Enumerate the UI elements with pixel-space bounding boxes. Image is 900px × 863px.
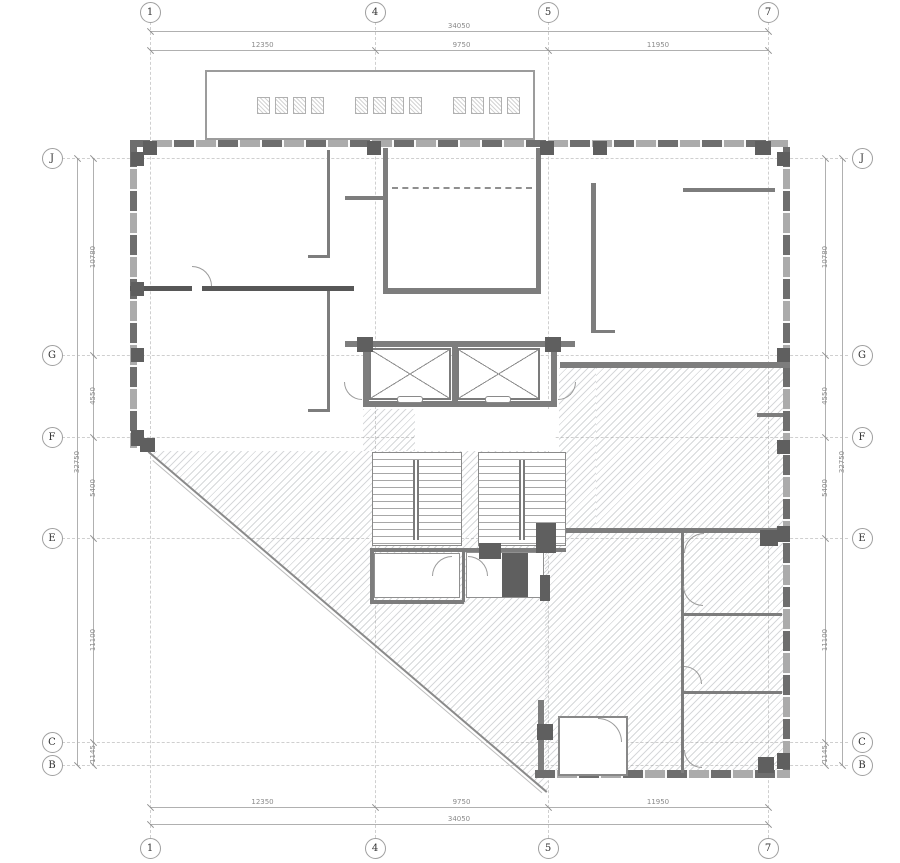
dimension-line-top-segments [150, 50, 768, 51]
atrium-dashed-railing [392, 187, 532, 189]
dimension-text: 32750 [73, 440, 81, 484]
column [777, 440, 790, 454]
column [545, 337, 561, 352]
curtain-wall-right [783, 147, 790, 772]
stencil-character-glyph [293, 97, 306, 114]
dimension-text: 11950 [636, 41, 680, 49]
grid-bubble-5: 5 [538, 2, 559, 23]
partition-wall [370, 600, 464, 604]
dimension-text: 5400 [821, 466, 829, 510]
column [593, 141, 607, 155]
partition-wall [327, 150, 330, 258]
grid-bubble-4: 4 [365, 2, 386, 23]
stair-stringer [519, 460, 525, 540]
grid-bubble-1: 1 [140, 838, 161, 859]
wall-block [502, 553, 528, 597]
grid-bubble-C: C [852, 732, 873, 753]
column [777, 753, 790, 769]
stencil-character-glyph [453, 97, 466, 114]
wall-block [536, 523, 556, 553]
column [758, 757, 774, 773]
dimension-text: 10780 [89, 235, 97, 279]
grid-bubble-J: J [42, 148, 63, 169]
curtain-wall-left [130, 147, 137, 448]
partition-wall [684, 691, 782, 694]
dimension-text: 9750 [440, 41, 484, 49]
stencil-character-glyph [311, 97, 324, 114]
dimension-text: 34050 [437, 815, 481, 823]
grid-bubble-E: E [42, 528, 63, 549]
partition-wall [327, 290, 330, 412]
grid-line-row-J [62, 158, 848, 159]
dimension-text: 12350 [241, 798, 285, 806]
door-swing-arc [344, 382, 362, 400]
stencil-character-glyph [373, 97, 386, 114]
column [777, 152, 790, 166]
stencil-character-glyph [409, 97, 422, 114]
dimension-text: 4550 [89, 374, 97, 418]
dimension-text: 1145 [89, 732, 97, 776]
grid-bubble-7: 7 [758, 2, 779, 23]
partition-wall [308, 255, 330, 258]
dimension-text: 12350 [241, 41, 285, 49]
partition-wall [681, 533, 684, 773]
partition-wall [536, 148, 541, 294]
stencil-character-glyph [257, 97, 270, 114]
grid-bubble-C: C [42, 732, 63, 753]
partition-wall [757, 413, 783, 417]
partition-wall [363, 401, 557, 407]
column [777, 348, 790, 362]
column [131, 152, 144, 166]
stencil-character-glyph [471, 97, 484, 114]
curtain-wall-top [130, 140, 790, 147]
grid-bubble-B: B [42, 755, 63, 776]
column [143, 141, 157, 155]
utility-room [558, 716, 628, 776]
dimension-text: 34050 [437, 22, 481, 30]
column [760, 530, 778, 546]
corridor [415, 409, 555, 450]
partition-wall [202, 286, 354, 291]
partition-wall [684, 613, 782, 616]
grid-bubble-5: 5 [538, 838, 559, 859]
grid-bubble-7: 7 [758, 838, 779, 859]
hatched-floor-area [596, 368, 783, 528]
dimension-line-bottom-overall [150, 824, 768, 825]
partition-wall [308, 409, 330, 412]
door-swing-arc [192, 266, 212, 286]
dimension-text: 11100 [89, 618, 97, 662]
partition-wall [345, 341, 575, 347]
grid-bubble-J: J [852, 148, 873, 169]
column [537, 724, 553, 740]
dimension-text: 9750 [440, 798, 484, 806]
elevator-door-sill [397, 396, 423, 403]
dimension-text: 4550 [821, 374, 829, 418]
dimension-text: 5400 [89, 466, 97, 510]
dimension-line-bottom-segments [150, 807, 768, 808]
grid-bubble-G: G [42, 345, 63, 366]
stencil-character-glyph [275, 97, 288, 114]
dimension-text: 32750 [838, 440, 846, 484]
dimension-text: 11100 [821, 618, 829, 662]
column [755, 141, 771, 155]
stencil-character-glyph [507, 97, 520, 114]
column [540, 141, 554, 155]
grid-bubble-B: B [852, 755, 873, 776]
stencil-character-glyph [355, 97, 368, 114]
grid-bubble-F: F [42, 427, 63, 448]
partition-wall [683, 188, 775, 192]
column [357, 337, 373, 352]
elevator-shaft [369, 348, 451, 400]
partition-wall [383, 288, 541, 294]
stair-stringer [413, 460, 419, 540]
column [131, 282, 144, 296]
grid-bubble-1: 1 [140, 2, 161, 23]
column [140, 438, 155, 452]
elevator-shaft [457, 348, 540, 400]
hatched-floor-area [363, 409, 415, 451]
stencil-character-glyph [489, 97, 502, 114]
column [131, 348, 144, 362]
grid-bubble-E: E [852, 528, 873, 549]
dimension-line-top-overall [150, 31, 768, 32]
partition-wall [591, 330, 615, 333]
partition-wall [591, 183, 596, 333]
grid-bubble-F: F [852, 427, 873, 448]
dimension-text: 11950 [636, 798, 680, 806]
partition-wall [345, 196, 383, 200]
partition-wall [560, 362, 790, 368]
floor-plan-canvas: 3405012350975011950123509750119503405032… [0, 0, 900, 863]
partition-wall [462, 548, 465, 602]
canopy-outline [205, 70, 535, 140]
elevator-door-sill [485, 396, 511, 403]
column [367, 141, 381, 155]
partition-wall [560, 528, 790, 533]
dimension-text: 10780 [821, 235, 829, 279]
grid-bubble-G: G [852, 345, 873, 366]
wall-block [540, 575, 550, 601]
partition-wall [383, 148, 388, 294]
dimension-text: 1145 [821, 732, 829, 776]
stencil-character-glyph [391, 97, 404, 114]
grid-bubble-4: 4 [365, 838, 386, 859]
wall-block [479, 543, 501, 559]
column [777, 526, 790, 542]
